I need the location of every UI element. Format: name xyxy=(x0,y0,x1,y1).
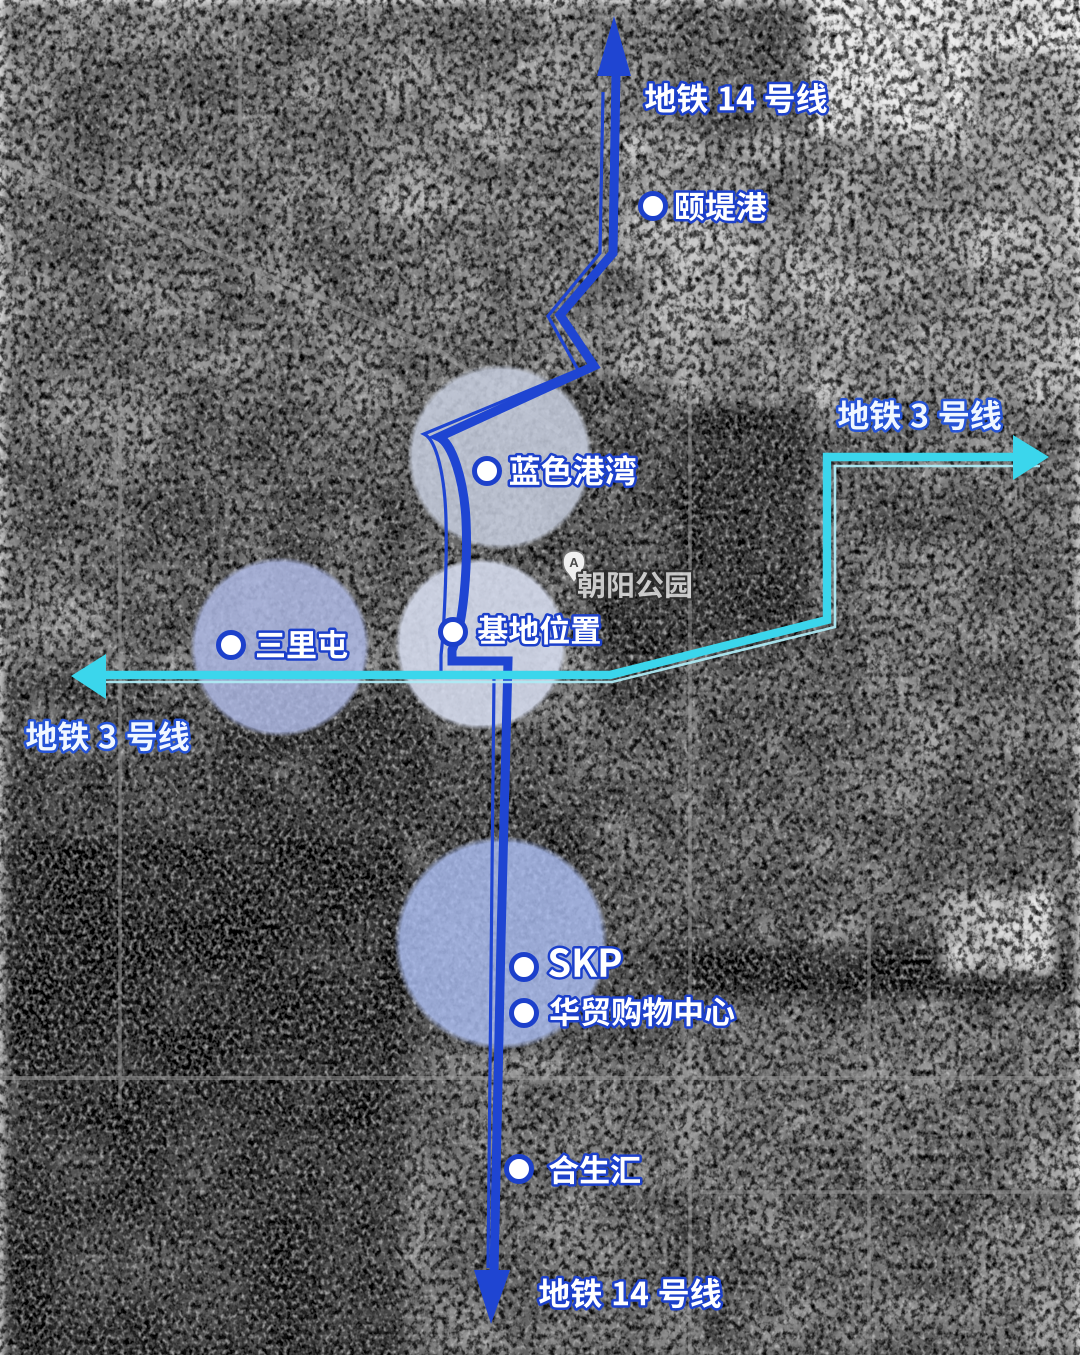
svg-text:A: A xyxy=(569,555,579,570)
